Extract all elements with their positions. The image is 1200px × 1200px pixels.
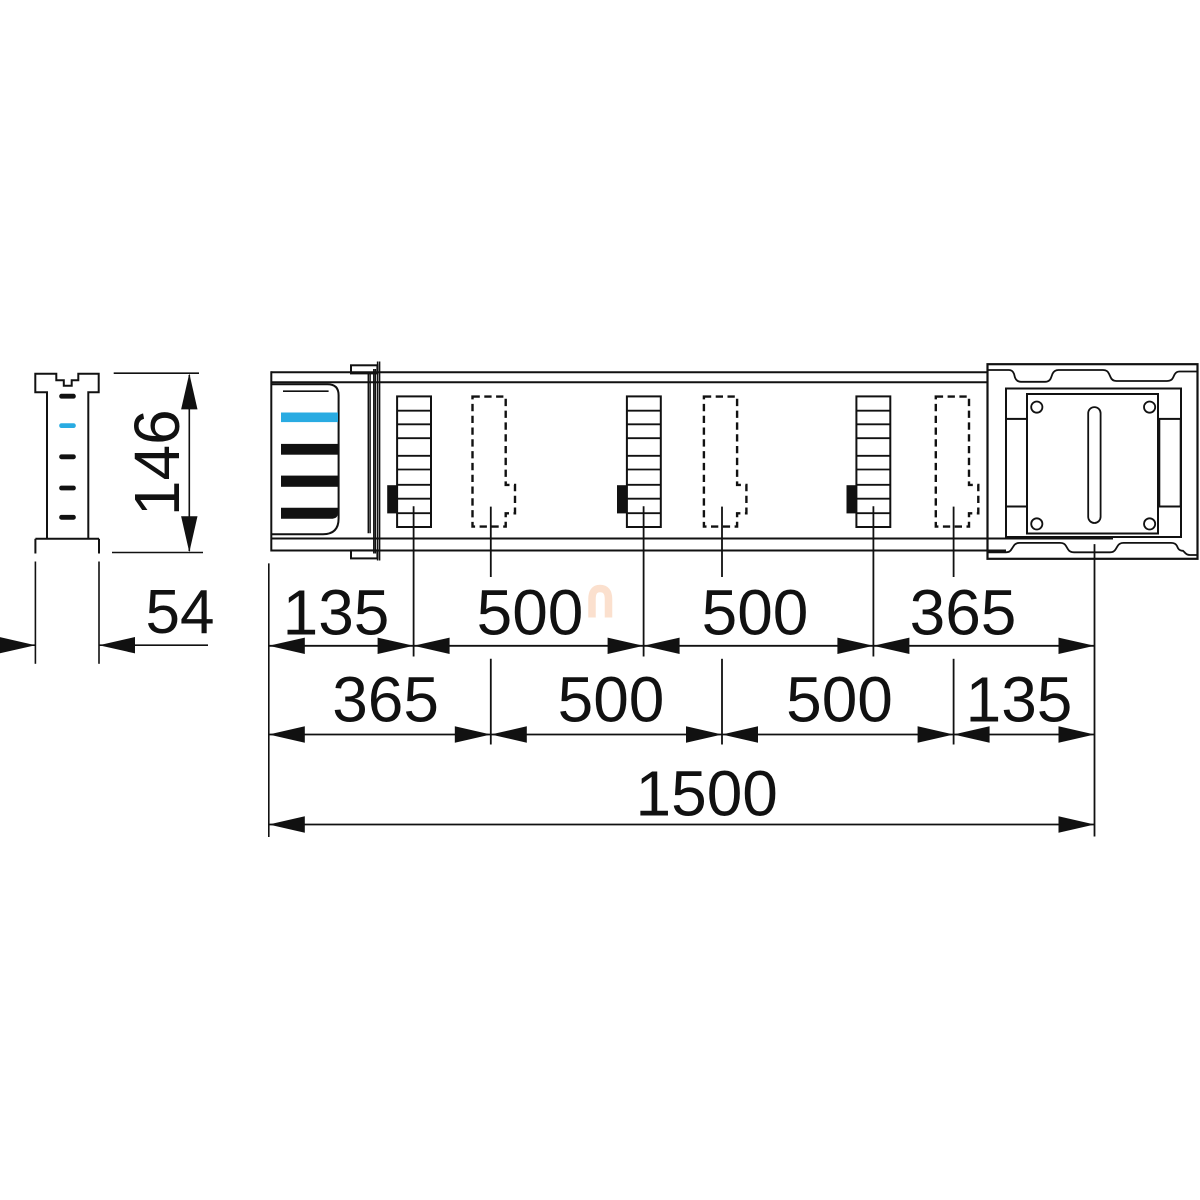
svg-text:135: 135 (283, 577, 390, 649)
svg-text:500: 500 (477, 577, 584, 649)
svg-text:1500: 1500 (636, 757, 778, 829)
svg-text:146: 146 (121, 409, 193, 516)
svg-text:365: 365 (910, 577, 1017, 649)
svg-text:500: 500 (702, 577, 809, 649)
svg-text:135: 135 (966, 664, 1073, 736)
svg-text:365: 365 (332, 664, 439, 736)
svg-text:54: 54 (146, 578, 215, 647)
svg-text:500: 500 (786, 664, 893, 736)
svg-text:500: 500 (558, 664, 665, 736)
